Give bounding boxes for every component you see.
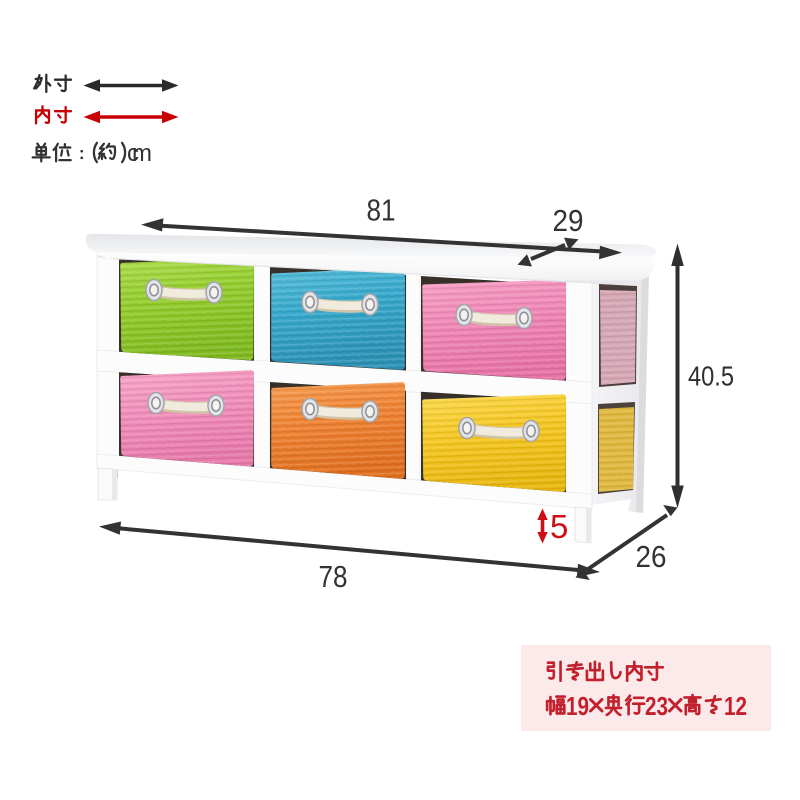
svg-text:78: 78	[319, 559, 348, 594]
svg-text:19: 19	[566, 691, 589, 721]
svg-text:40.5: 40.5	[688, 361, 734, 392]
svg-text:12: 12	[724, 691, 747, 721]
svg-text:26: 26	[636, 539, 667, 574]
svg-text:23: 23	[645, 691, 668, 721]
svg-text:cm: cm	[127, 140, 152, 167]
svg-text:81: 81	[367, 193, 396, 228]
svg-text:29: 29	[553, 203, 584, 238]
svg-text:5: 5	[550, 508, 568, 545]
